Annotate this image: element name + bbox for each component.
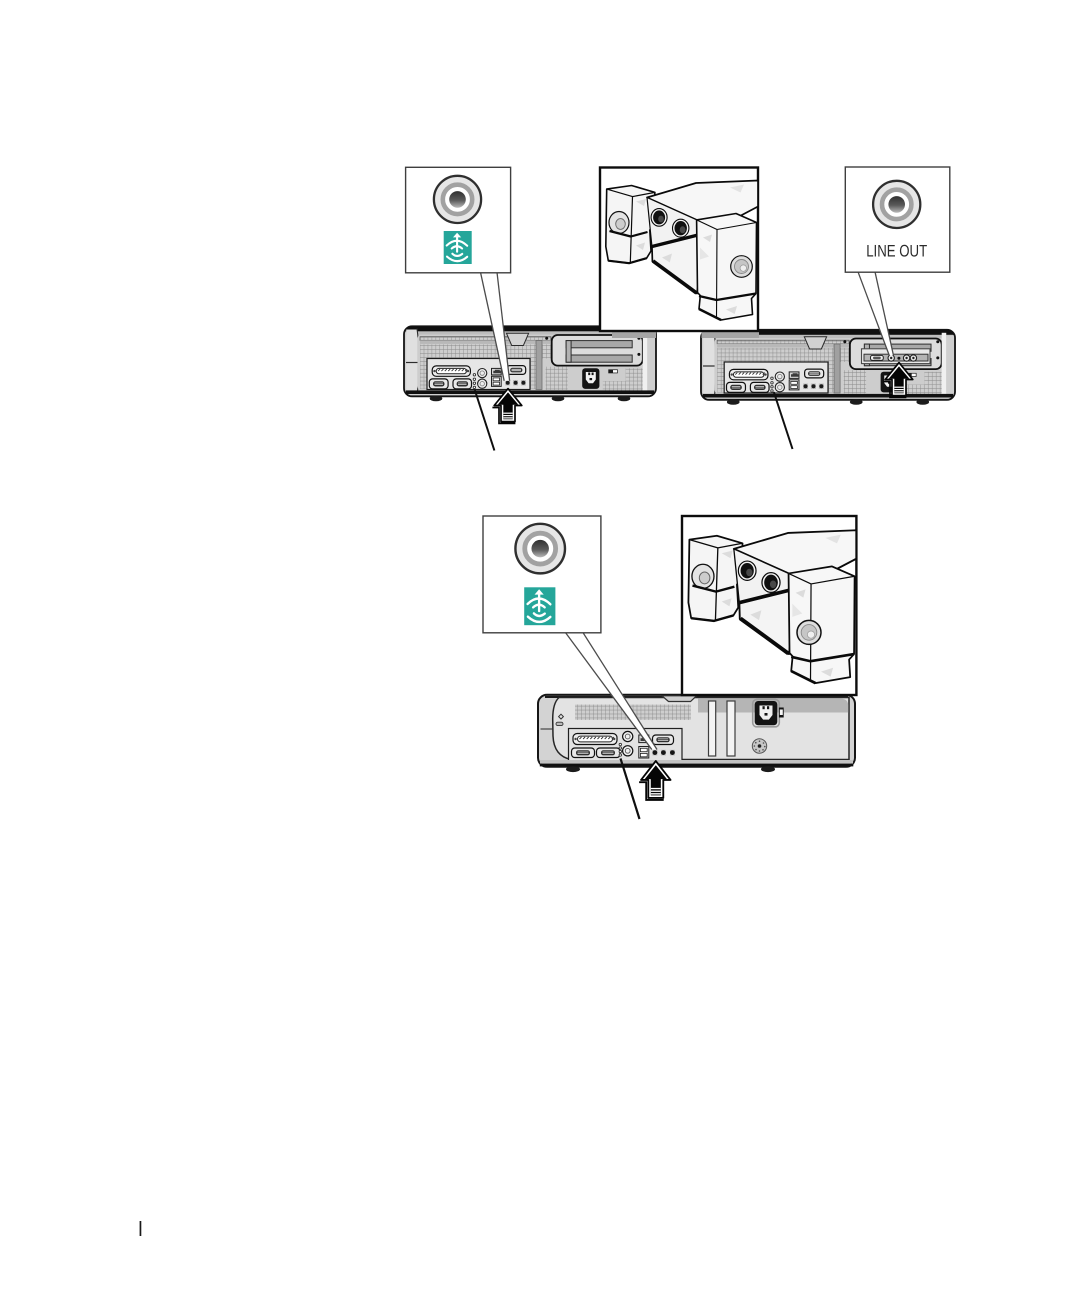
svg-text:LINE OUT: LINE OUT (866, 242, 927, 261)
